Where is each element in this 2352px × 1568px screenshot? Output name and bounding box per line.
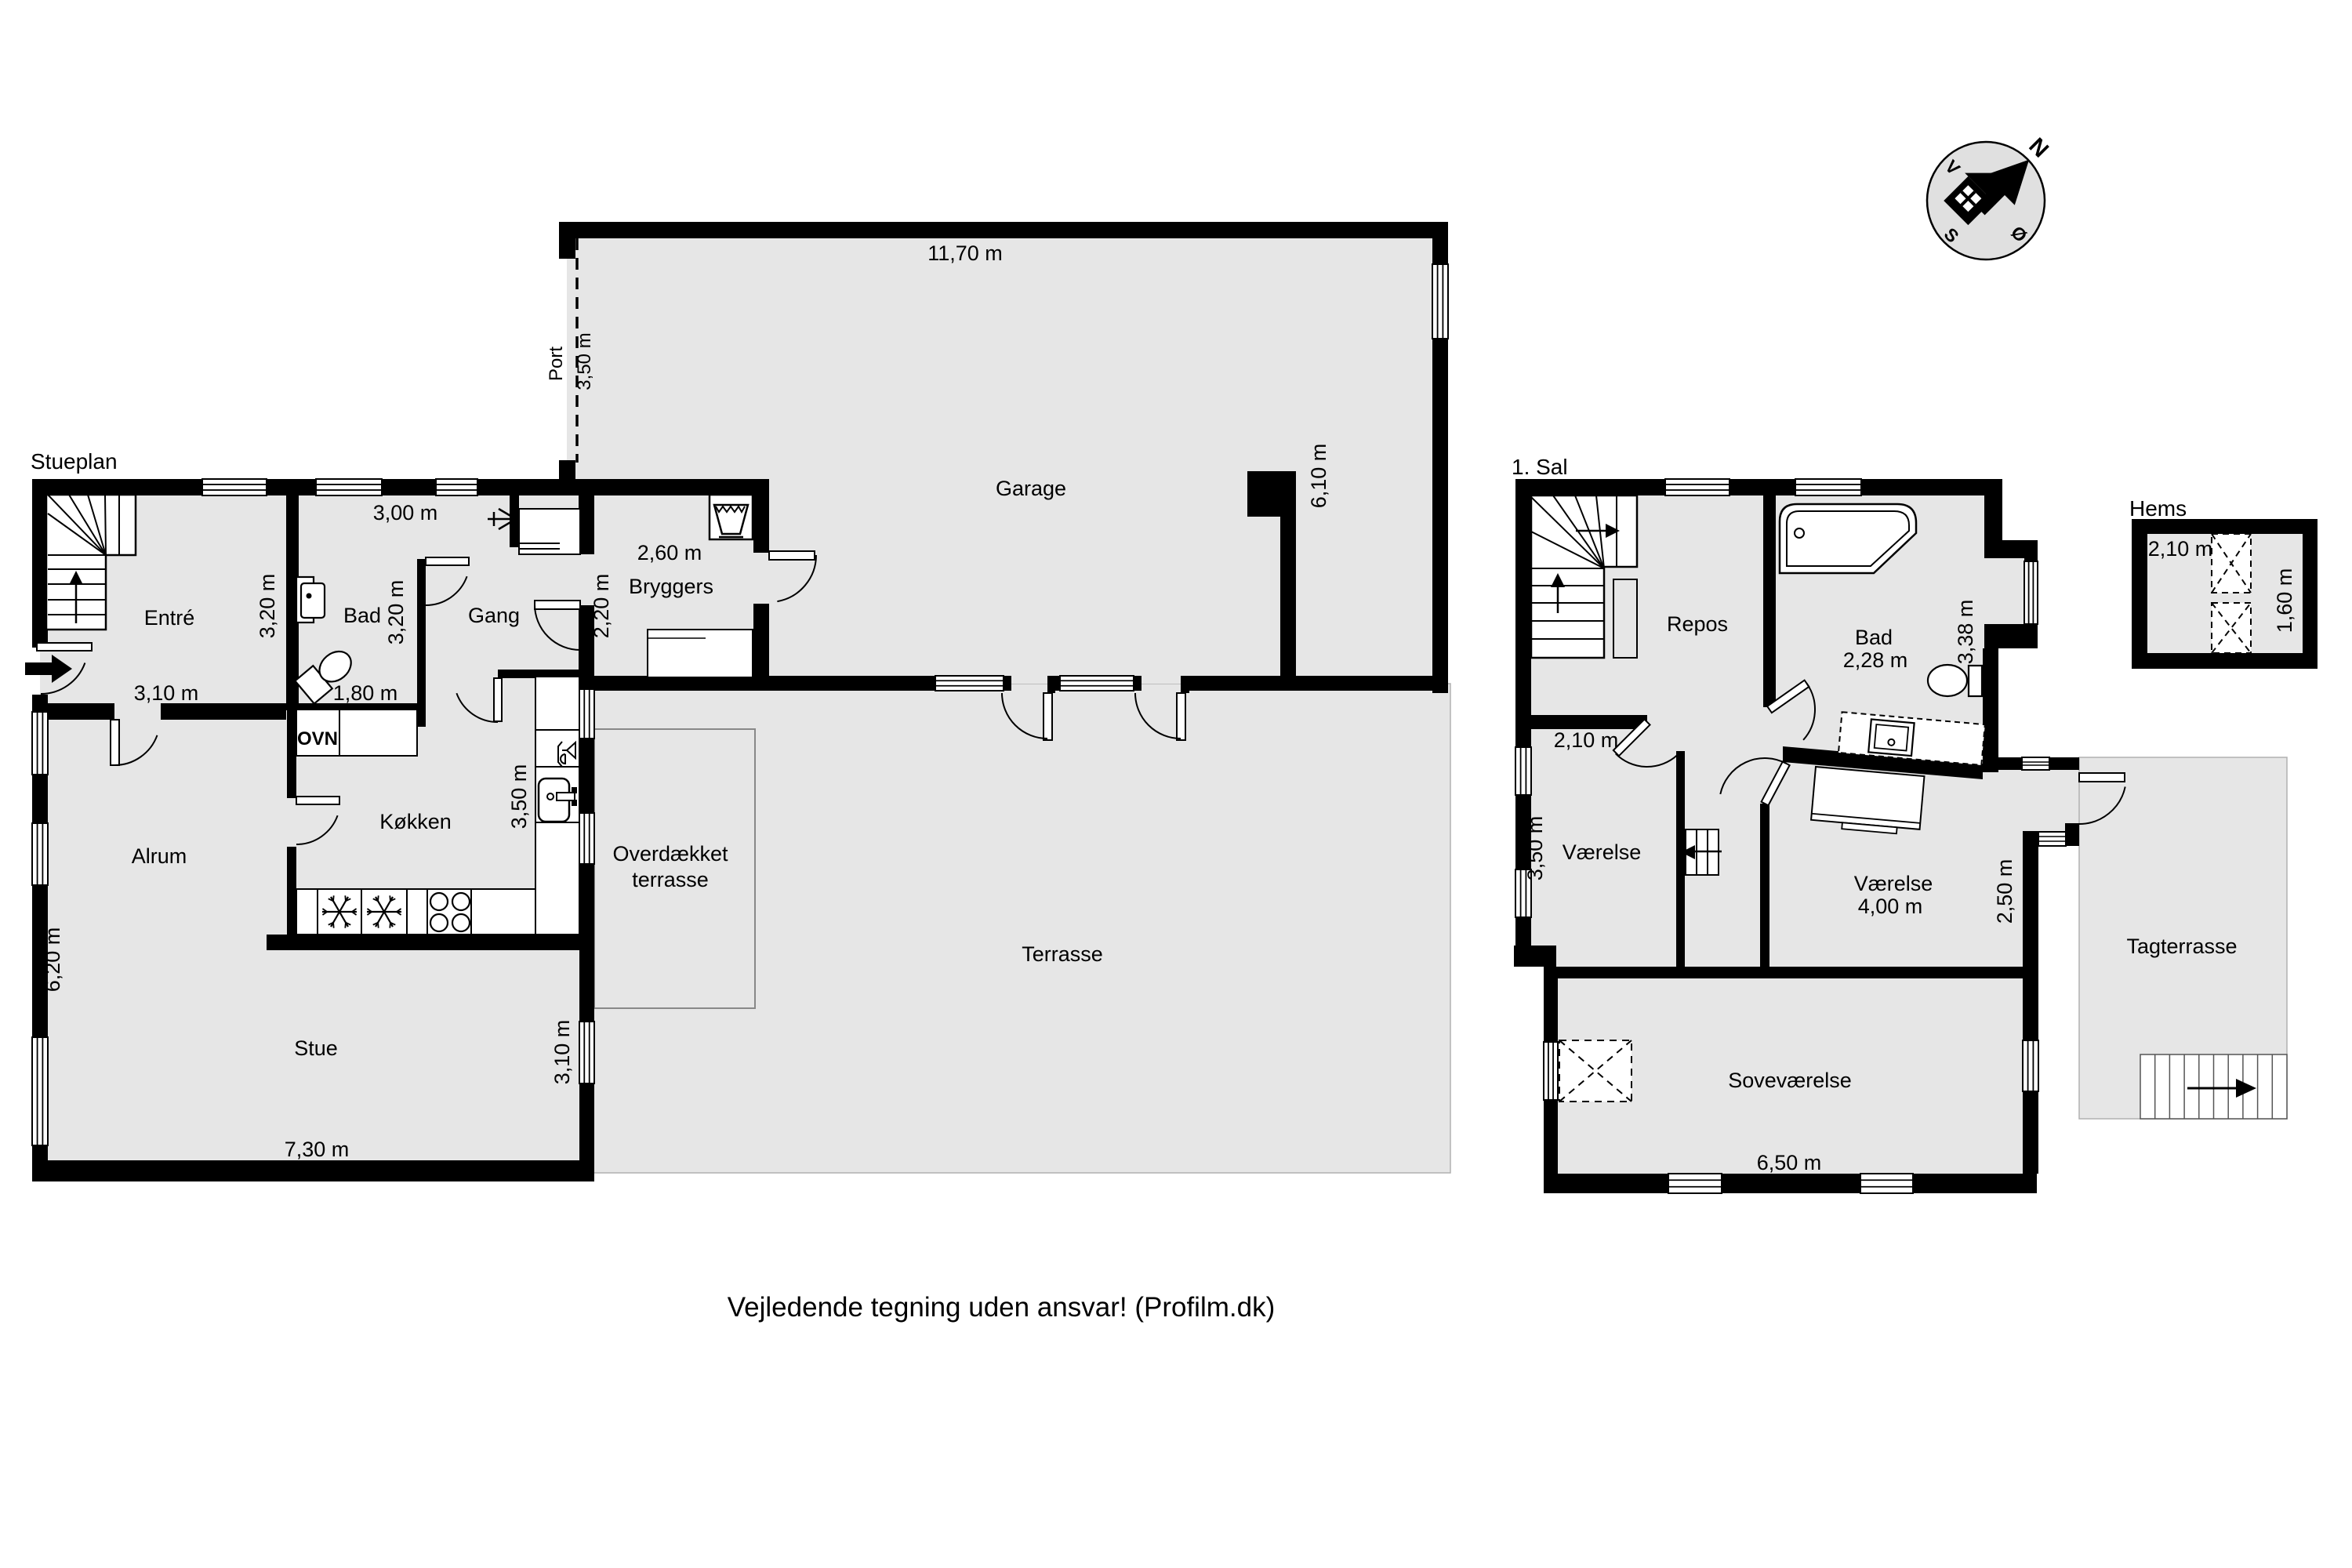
- svg-text:Gang: Gang: [468, 604, 520, 627]
- svg-text:3,20 m: 3,20 m: [384, 580, 408, 645]
- svg-text:Entré: Entré: [144, 606, 195, 630]
- svg-text:4,00 m: 4,00 m: [1858, 895, 1923, 918]
- svg-text:Tagterrasse: Tagterrasse: [2126, 935, 2237, 958]
- svg-text:3,50 m: 3,50 m: [507, 764, 531, 829]
- svg-text:Soveværelse: Soveværelse: [1728, 1069, 1852, 1092]
- svg-text:11,70 m: 11,70 m: [927, 241, 1003, 265]
- svg-text:2,50 m: 2,50 m: [1993, 859, 2016, 924]
- svg-text:Bryggers: Bryggers: [629, 575, 713, 598]
- svg-text:Værelse: Værelse: [1563, 840, 1642, 864]
- svg-text:3,10 m: 3,10 m: [550, 1020, 574, 1085]
- svg-text:3,38 m: 3,38 m: [1954, 600, 1977, 665]
- svg-text:1. Sal: 1. Sal: [1512, 455, 1568, 479]
- svg-text:2,28 m: 2,28 m: [1843, 648, 1908, 672]
- svg-text:3,50 m: 3,50 m: [1523, 816, 1547, 881]
- svg-text:Garage: Garage: [996, 477, 1066, 500]
- svg-text:2,20 m: 2,20 m: [590, 574, 613, 639]
- svg-text:Bad: Bad: [1855, 626, 1893, 649]
- svg-text:Vejledende tegning uden ansvar: Vejledende tegning uden ansvar! (Profilm…: [728, 1292, 1275, 1323]
- svg-text:Repos: Repos: [1667, 612, 1728, 636]
- svg-text:1,80 m: 1,80 m: [333, 681, 398, 705]
- svg-text:6,20 m: 6,20 m: [41, 927, 64, 993]
- svg-text:6,50 m: 6,50 m: [1757, 1151, 1822, 1174]
- svg-text:3,00 m: 3,00 m: [373, 501, 438, 524]
- svg-text:terrasse: terrasse: [632, 868, 709, 891]
- svg-text:Overdækket: Overdækket: [612, 842, 728, 866]
- svg-text:3,20 m: 3,20 m: [256, 574, 279, 639]
- svg-text:Port: Port: [546, 347, 567, 381]
- svg-text:Køkken: Køkken: [379, 810, 452, 833]
- svg-text:1,60 m: 1,60 m: [2273, 568, 2296, 633]
- svg-text:3,10 m: 3,10 m: [134, 681, 199, 705]
- svg-text:Hems: Hems: [2129, 496, 2187, 521]
- svg-text:Terrasse: Terrasse: [1022, 942, 1103, 966]
- svg-text:7,30 m: 7,30 m: [285, 1138, 350, 1161]
- svg-text:3,50 m: 3,50 m: [574, 332, 595, 390]
- svg-text:Stueplan: Stueplan: [31, 449, 118, 474]
- svg-text:2,60 m: 2,60 m: [637, 541, 702, 564]
- svg-text:6,10 m: 6,10 m: [1307, 444, 1330, 509]
- svg-text:Værelse: Værelse: [1854, 872, 1933, 895]
- svg-text:2,10 m: 2,10 m: [2148, 537, 2213, 561]
- svg-text:2,10 m: 2,10 m: [1554, 728, 1619, 752]
- svg-text:OVN: OVN: [297, 728, 338, 750]
- svg-text:Stue: Stue: [294, 1036, 338, 1060]
- svg-text:Alrum: Alrum: [132, 844, 187, 868]
- svg-text:Bad: Bad: [343, 604, 381, 627]
